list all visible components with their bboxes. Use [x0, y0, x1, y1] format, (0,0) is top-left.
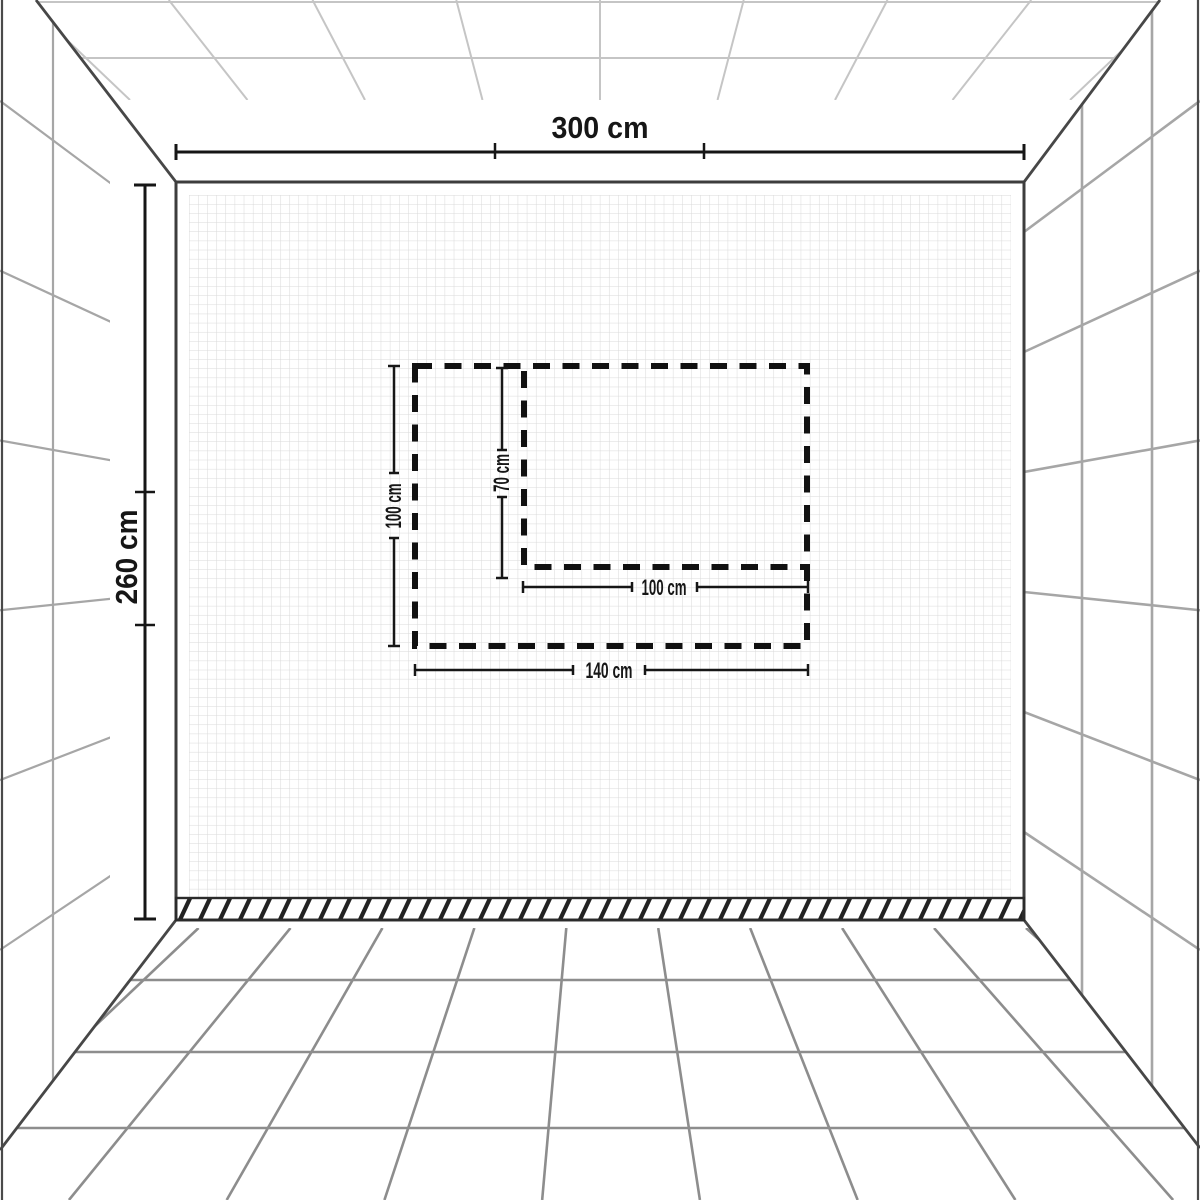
- tile-grid-line: [0, 101, 176, 232]
- tile-grid-line: [0, 928, 199, 1200]
- ceiling-tile-grid: [0, 0, 1200, 100]
- inner-height-label: 70 cm: [489, 454, 514, 492]
- tile-grid-line: [384, 928, 474, 1200]
- tile-grid-line: [1024, 592, 1200, 610]
- tile-grid-line: [1024, 712, 1200, 780]
- inner-width-label: 100 cm: [642, 575, 687, 600]
- left-wall-tile-grid: [0, 0, 176, 1200]
- tile-grid-line: [227, 928, 383, 1200]
- tile-grid-line: [1024, 101, 1200, 232]
- area-height-label: 100 cm: [381, 484, 406, 529]
- tile-grid-line: [313, 0, 365, 100]
- tile-grid-line: [158, 894, 172, 924]
- tile-grid-line: [25, 0, 130, 100]
- tile-grid-line: [718, 0, 744, 100]
- tile-grid-line: [0, 592, 176, 610]
- floor-right-corner-edge: [1024, 920, 1200, 1148]
- mosaic-tile-area: [189, 195, 1011, 898]
- tile-grid-line: [835, 0, 887, 100]
- tile-grid-line: [934, 928, 1173, 1200]
- floor-tile-grid: [0, 928, 1200, 1200]
- tile-grid-line: [1024, 271, 1200, 352]
- tile-grid-line: [842, 928, 1015, 1200]
- room-diagram-canvas: 300 cm 260 cm 100 cm 70 cm 100 cm 140 cm: [0, 0, 1200, 1200]
- tile-grid-line: [1038, 894, 1052, 924]
- tile-grid-line: [542, 928, 566, 1200]
- tile-grid-line: [658, 928, 700, 1200]
- tile-grid-line: [456, 0, 482, 100]
- tile-grid-line: [0, 440, 176, 472]
- floor-left-corner-edge: [0, 920, 176, 1150]
- room-width-label: 300 cm: [552, 110, 649, 145]
- tile-grid-line: [0, 271, 176, 352]
- tile-grid-line: [750, 928, 857, 1200]
- tile-grid-line: [0, 712, 176, 780]
- room-width-dimension: [176, 143, 1024, 160]
- ceiling-right-corner-edge: [1024, 0, 1160, 182]
- tile-grid-line: [1024, 832, 1200, 950]
- tile-grid-line: [953, 0, 1032, 100]
- tile-grid-line: [1024, 440, 1200, 472]
- tile-grid-line: [169, 0, 248, 100]
- room-height-label: 260 cm: [109, 510, 144, 605]
- ceiling-left-corner-edge: [36, 0, 176, 182]
- area-width-label: 140 cm: [586, 658, 633, 683]
- tile-grid-line: [0, 832, 176, 950]
- right-wall-tile-grid: [1024, 0, 1200, 1200]
- room-perspective-diagram: 300 cm 260 cm 100 cm 70 cm 100 cm 140 cm: [0, 0, 1200, 1200]
- tile-grid-line: [69, 928, 291, 1200]
